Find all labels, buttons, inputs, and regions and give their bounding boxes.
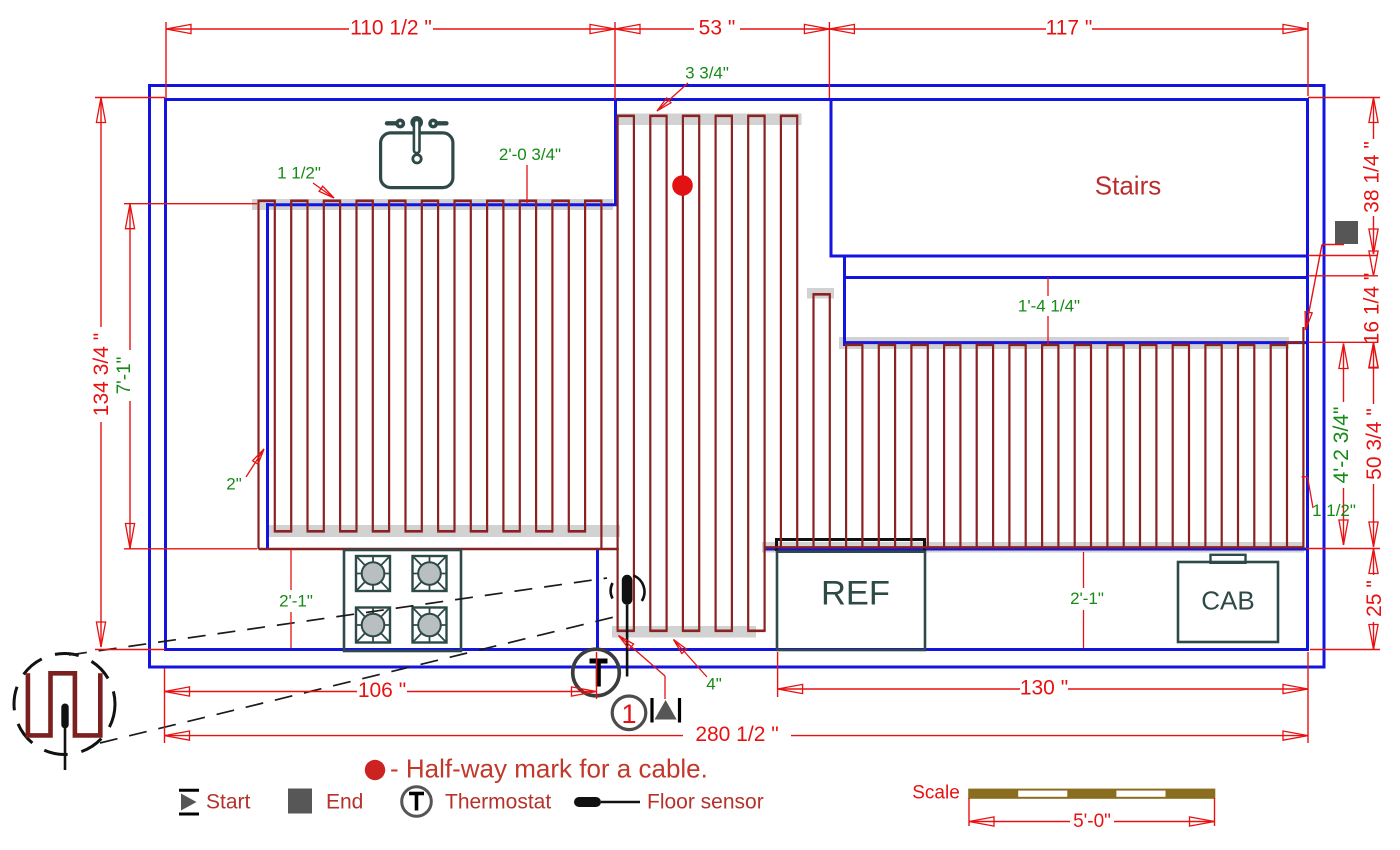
svg-text:End: End [326,791,363,814]
svg-text:3 3/4": 3 3/4" [685,64,729,83]
svg-text:CAB: CAB [1201,586,1254,616]
svg-text:106 ": 106 " [358,679,406,702]
svg-text:2": 2" [226,475,242,494]
svg-text:2'-0 3/4": 2'-0 3/4" [499,145,561,164]
svg-text:Start: Start [206,791,251,814]
svg-text:1 1/2": 1 1/2" [277,164,321,183]
svg-text:50 3/4 ": 50 3/4 " [1363,408,1386,480]
svg-text:53 ": 53 " [699,17,736,40]
svg-text:5'-0": 5'-0" [1073,811,1111,832]
svg-text:Thermostat: Thermostat [445,791,551,814]
svg-text:4'-2 3/4": 4'-2 3/4" [1330,407,1353,484]
svg-text:2'-1": 2'-1" [1070,589,1104,608]
svg-text:Stairs: Stairs [1095,171,1161,201]
svg-text:38 1/4 ": 38 1/4 " [1361,141,1384,213]
svg-text:25 ": 25 " [1363,580,1386,617]
svg-text:Floor sensor: Floor sensor [647,791,764,814]
svg-text:REF: REF [821,575,890,613]
svg-text:134 3/4 ": 134 3/4 " [90,333,113,416]
svg-text:7'-1": 7'-1" [114,357,135,395]
svg-text:16 1/4 ": 16 1/4 " [1361,273,1384,345]
svg-text:117 ": 117 " [1046,17,1093,40]
svg-text:4": 4" [706,675,722,694]
svg-text:1: 1 [621,699,636,729]
svg-text:280 1/2 ": 280 1/2 " [695,723,778,746]
svg-text:2'-1": 2'-1" [279,592,313,611]
svg-text:- Half-way mark for a cable.: - Half-way mark for a cable. [390,754,708,784]
svg-text:1'-4 1/4": 1'-4 1/4" [1018,297,1080,316]
svg-text:1 1/2": 1 1/2" [1312,501,1356,520]
svg-text:110 1/2 ": 110 1/2 " [350,17,432,40]
svg-text:Scale: Scale [912,783,960,804]
svg-text:130 ": 130 " [1020,677,1068,700]
